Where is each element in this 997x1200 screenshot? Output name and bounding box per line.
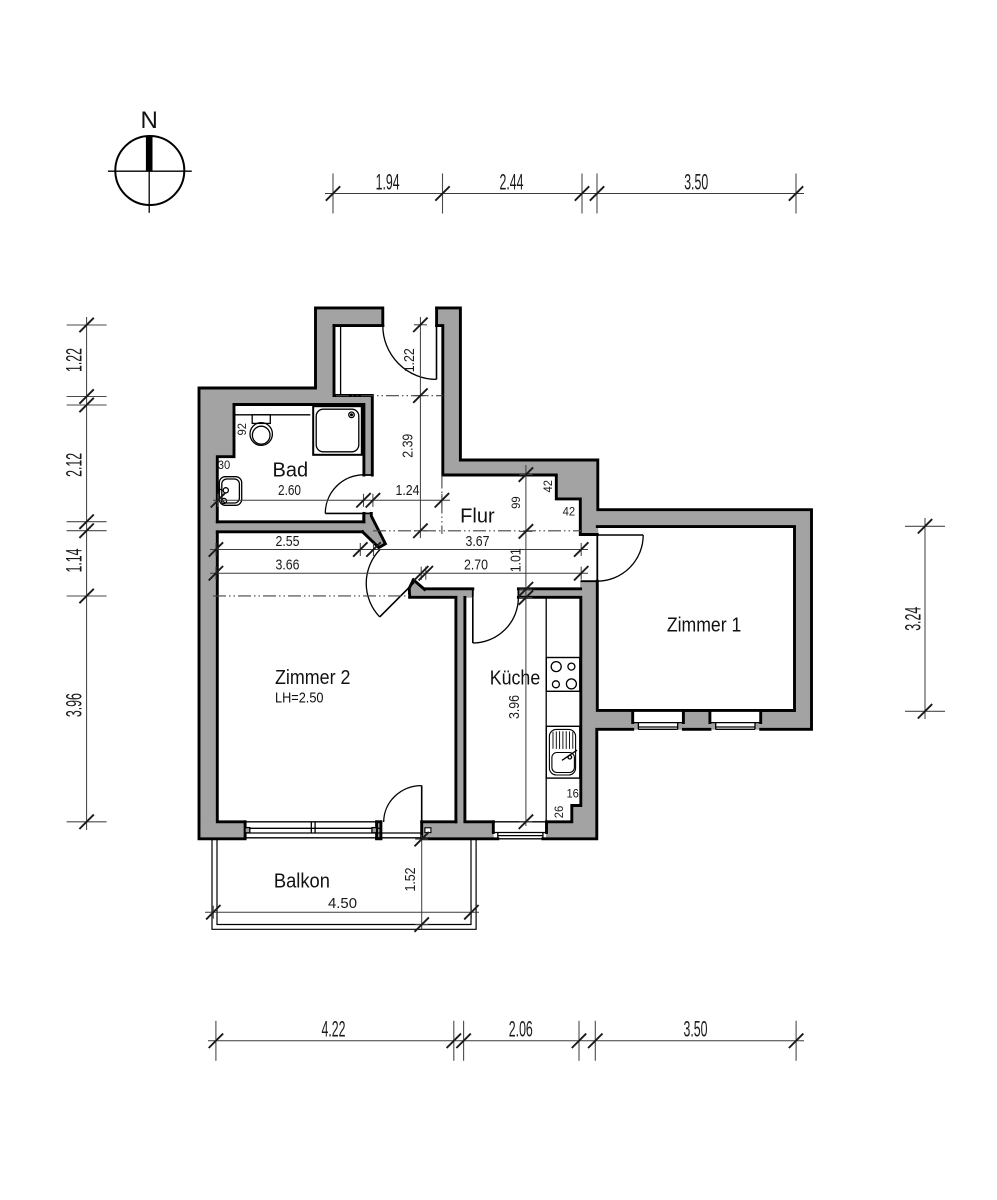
svg-text:2.06: 2.06 — [509, 1017, 533, 1042]
svg-text:2.60: 2.60 — [278, 482, 301, 499]
svg-text:1.24: 1.24 — [396, 482, 420, 499]
svg-text:3.24: 3.24 — [901, 607, 926, 631]
svg-text:Bad: Bad — [273, 460, 309, 482]
svg-text:4.22: 4.22 — [322, 1017, 346, 1042]
svg-text:2.39: 2.39 — [400, 434, 417, 458]
svg-text:LH=2.50: LH=2.50 — [275, 689, 324, 706]
svg-text:3.96: 3.96 — [506, 695, 523, 719]
svg-text:1.94: 1.94 — [376, 170, 400, 195]
svg-text:3.66: 3.66 — [276, 557, 300, 574]
svg-text:Zimmer 1: Zimmer 1 — [667, 614, 742, 637]
svg-text:1.14: 1.14 — [62, 549, 87, 573]
svg-text:Flur: Flur — [460, 506, 495, 528]
svg-text:2.70: 2.70 — [464, 557, 488, 574]
svg-text:16: 16 — [566, 789, 579, 801]
svg-text:N: N — [141, 107, 158, 134]
svg-text:3.67: 3.67 — [466, 533, 490, 550]
svg-text:Zimmer 2: Zimmer 2 — [275, 666, 351, 689]
svg-text:4.50: 4.50 — [328, 895, 357, 912]
svg-text:Balkon: Balkon — [274, 869, 330, 892]
svg-text:3.96: 3.96 — [62, 693, 87, 717]
svg-text:Küche: Küche — [490, 666, 541, 689]
svg-text:30: 30 — [218, 460, 231, 472]
svg-text:1.22: 1.22 — [401, 348, 418, 372]
svg-text:92: 92 — [237, 423, 249, 436]
svg-text:99: 99 — [511, 496, 523, 509]
svg-text:2.44: 2.44 — [500, 170, 524, 195]
svg-text:3.50: 3.50 — [684, 1017, 708, 1042]
svg-text:2.12: 2.12 — [62, 453, 87, 477]
svg-text:42: 42 — [563, 507, 576, 519]
svg-text:1.01: 1.01 — [508, 548, 525, 572]
svg-text:26: 26 — [554, 806, 566, 819]
svg-text:2.55: 2.55 — [276, 533, 300, 550]
svg-text:3.50: 3.50 — [684, 170, 708, 195]
svg-text:1.52: 1.52 — [402, 868, 419, 892]
svg-text:1.22: 1.22 — [62, 348, 87, 372]
svg-text:42: 42 — [543, 480, 555, 493]
